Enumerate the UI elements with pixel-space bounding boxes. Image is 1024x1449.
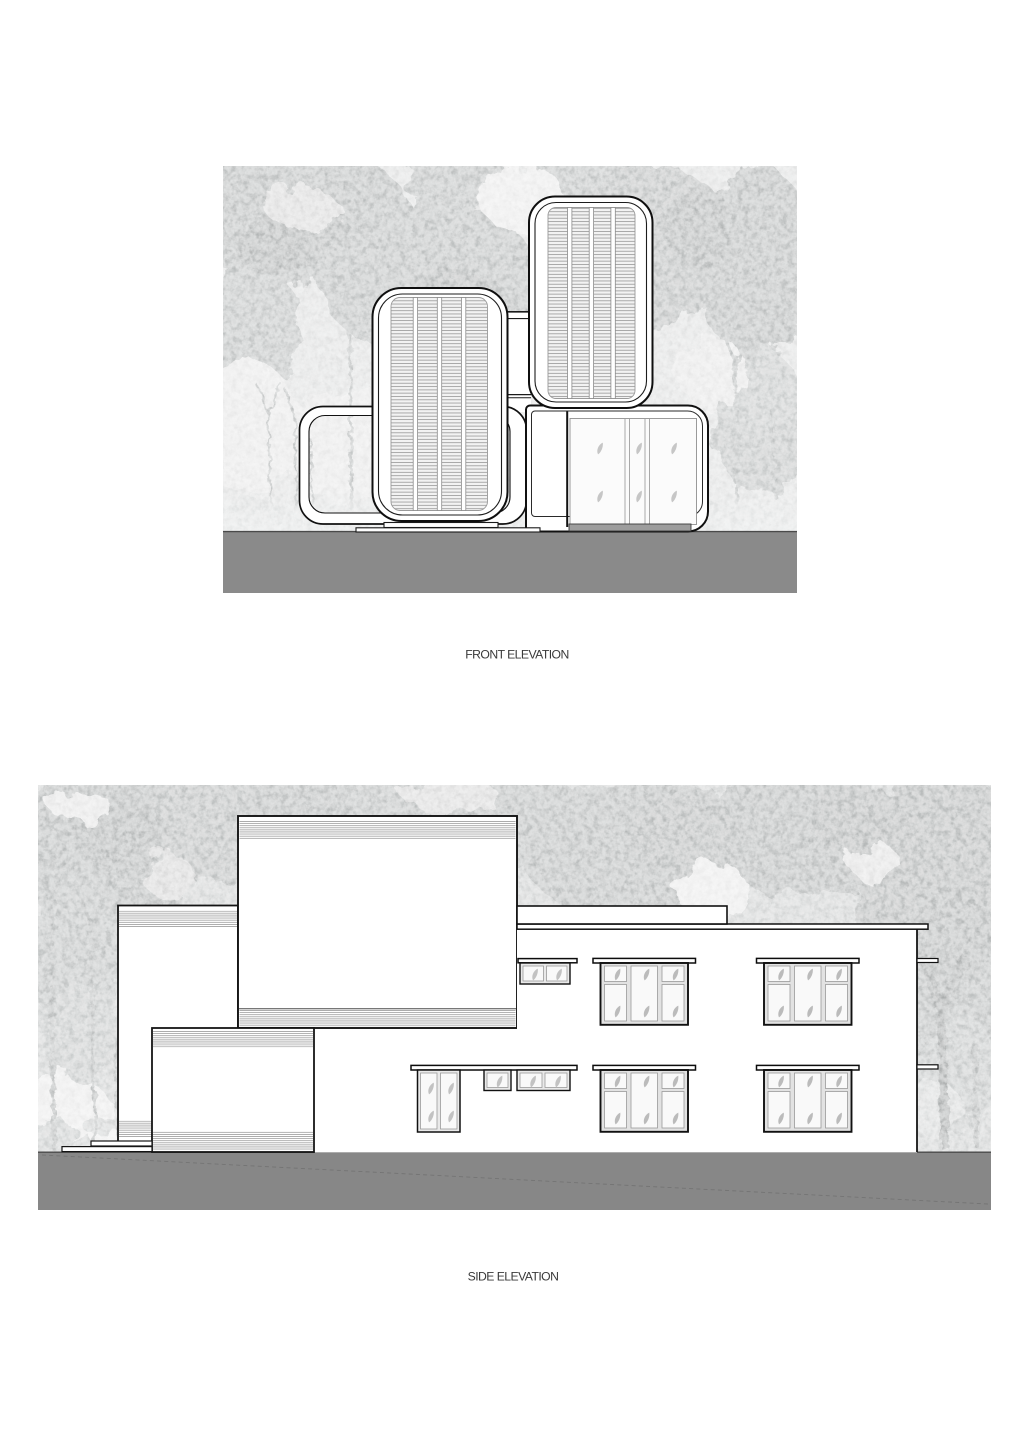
svg-text:SIDE ELEVATION: SIDE ELEVATION xyxy=(468,1270,559,1284)
svg-text:FRONT ELEVATION: FRONT ELEVATION xyxy=(465,648,568,662)
